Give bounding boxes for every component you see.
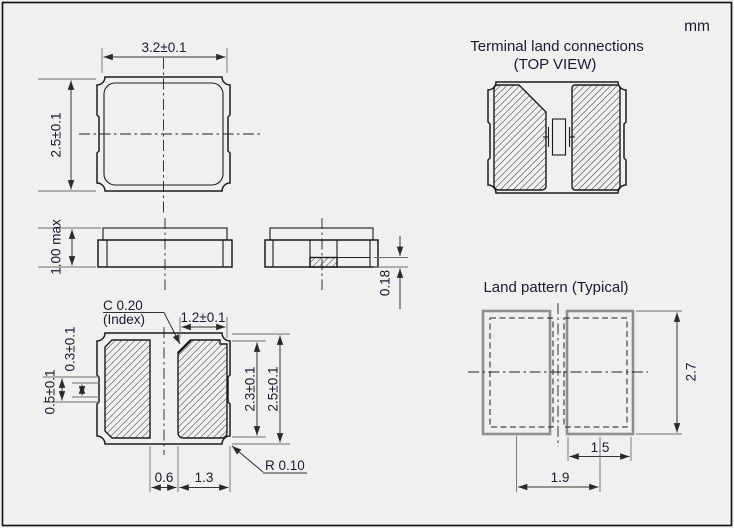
label-corner-radius: R 0.10	[265, 458, 305, 473]
dim-body-height: 2.5±0.1	[49, 113, 64, 158]
sheet-border	[3, 3, 732, 526]
dim-max-height: 1.00 max	[49, 219, 64, 275]
package-end-view: 0.18	[265, 218, 408, 309]
dim-body-length: 2.5±0.1	[266, 367, 281, 412]
component-footprint-left	[490, 318, 553, 427]
land-pattern-title: Land pattern (Typical)	[483, 279, 628, 296]
unit-label: mm	[684, 18, 710, 35]
dim-pad-bottom-width: 1.3	[195, 470, 214, 485]
dim-pad-length: 2.3±0.1	[243, 367, 258, 412]
label-chamfer: C 0.20	[103, 298, 143, 313]
land-pad-left	[483, 311, 550, 434]
crystal-symbol	[543, 119, 575, 155]
lid-end	[270, 228, 373, 240]
electrode-hatch	[310, 258, 337, 268]
dimension-drawing-sheet: mm 3.2±0.1 2.5±0.1 1.00 max	[0, 0, 734, 528]
terminal-land-title: Terminal land connections	[470, 38, 643, 55]
dim-castellation-inner: 0.3±0.1	[63, 327, 78, 372]
package-front-view: 1.00 max	[38, 218, 232, 290]
dim-castellation-outer: 0.5±0.1	[43, 370, 58, 415]
drawing-canvas: mm 3.2±0.1 2.5±0.1 1.00 max	[0, 0, 734, 528]
dim-pad-top-width: 1.2±0.1	[181, 310, 226, 325]
dim-land-height: 2.7	[684, 363, 699, 382]
terminal-pad-left	[105, 340, 150, 438]
land-pad-right	[567, 311, 633, 434]
land-connection-right	[572, 85, 620, 190]
dim-electrode-thickness: 0.18	[378, 270, 393, 296]
label-chamfer-note: (Index)	[103, 312, 145, 327]
package-bottom-view: C 0.20 (Index) 1.2±0.1 0.3±0.1 0.5±0.1 2…	[43, 298, 308, 492]
land-pattern-view: Land pattern (Typical) 2.7 1.5 1.9	[468, 279, 699, 492]
dim-body-width: 3.2±0.1	[142, 40, 187, 55]
chamfer-leader	[164, 313, 180, 345]
dim-land-pitch: 1.9	[551, 470, 570, 485]
dim-pad-gap: 0.6	[155, 470, 174, 485]
package-top-view: 3.2±0.1 2.5±0.1	[38, 40, 262, 214]
land-connection-left	[494, 85, 546, 190]
terminal-land-view: Terminal land connections (TOP VIEW)	[470, 38, 643, 193]
terminal-land-subtitle: (TOP VIEW)	[514, 56, 597, 73]
terminal-pad-right	[178, 340, 227, 438]
radius-leader	[232, 446, 263, 472]
component-footprint-right	[564, 318, 627, 427]
